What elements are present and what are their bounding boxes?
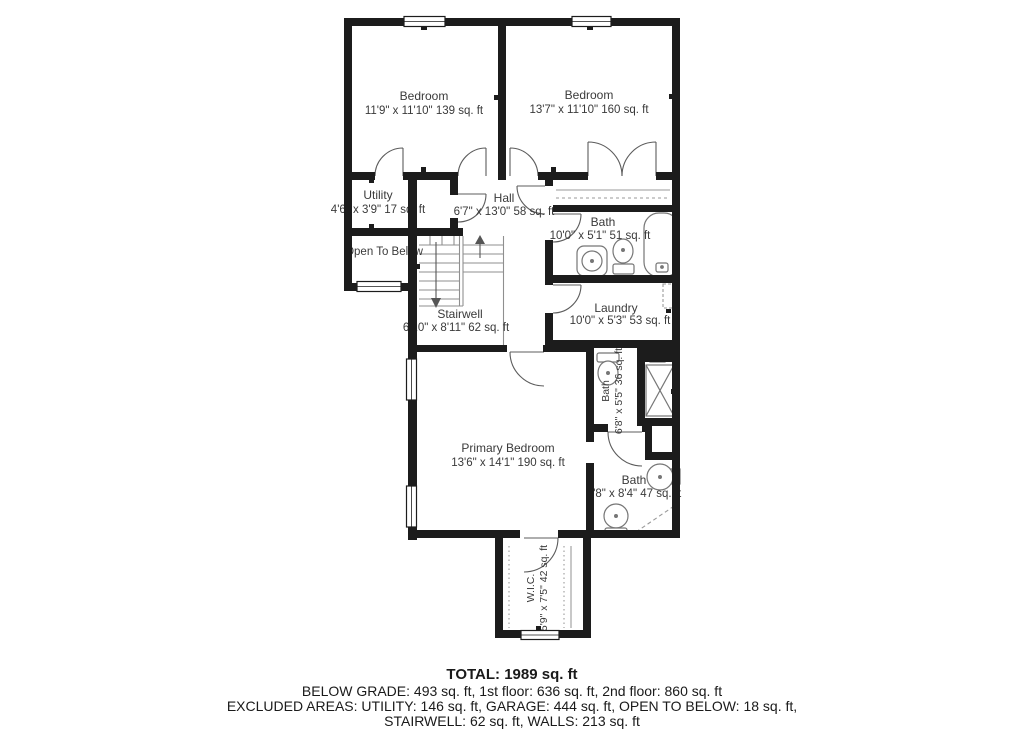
room-label-stairwell: Stairwell 6'10" x 8'11" 62 sq. ft — [403, 307, 510, 334]
door-arc — [608, 432, 642, 466]
window — [521, 631, 559, 640]
window — [404, 17, 445, 27]
room-label-wic: W.I.C. 5'9" x 7'5" 42 sq. ft — [525, 545, 550, 631]
room-label-primary-bedroom: Primary Bedroom 13'6" x 14'1" 190 sq. ft — [451, 441, 565, 469]
window — [407, 486, 417, 527]
room-name: Utility — [363, 188, 392, 202]
room-dims: 6'7" x 13'0" 58 sq. ft — [454, 206, 556, 218]
area-summary: TOTAL: 1989 sq. ft BELOW GRADE: 493 sq. … — [0, 666, 1024, 729]
door-arc — [510, 352, 544, 386]
room-label-bedroom-2: Bedroom 13'7" x 11'10" 160 sq. ft — [529, 88, 649, 116]
room-label-bath-upper: Bath 10'0" x 5'1" 51 sq. ft — [550, 215, 652, 242]
room-dims: 13'6" x 14'1" 190 sq. ft — [451, 457, 565, 469]
room-dims: 5'9" x 7'5" 42 sq. ft — [538, 545, 550, 631]
room-name: Bath — [591, 215, 616, 229]
room-name: W.I.C. — [525, 574, 537, 603]
room-name: Primary Bedroom — [461, 441, 554, 455]
room-name: Hall — [494, 191, 515, 205]
room-dims: 11'9" x 11'10" 139 sq. ft — [365, 105, 484, 117]
room-name: Bedroom — [565, 88, 614, 102]
floor-plan-page: Bedroom 11'9" x 11'10" 139 sq. ft Bedroo… — [0, 0, 1024, 738]
door-arc — [588, 142, 622, 176]
door-arc — [510, 148, 538, 176]
excluded-areas-text-2: STAIRWELL: 62 sq. ft, WALLS: 213 sq. ft — [0, 714, 1024, 729]
door-arc — [458, 148, 486, 176]
sink-icon — [577, 246, 607, 276]
room-dims: 10'0" x 5'3" 53 sq. ft — [570, 315, 672, 327]
room-name: Bedroom — [400, 89, 449, 103]
room-labels: Bedroom 11'9" x 11'10" 139 sq. ft Bedroo… — [331, 88, 682, 631]
window — [407, 359, 417, 400]
room-name: Laundry — [594, 301, 637, 315]
room-name: Stairwell — [437, 307, 482, 321]
room-name: Bath — [622, 473, 647, 487]
room-label-hall: Hall 6'7" x 13'0" 58 sq. ft — [454, 191, 556, 218]
floor-areas-text: BELOW GRADE: 493 sq. ft, 1st floor: 636 … — [0, 684, 1024, 699]
door-arc — [553, 285, 581, 313]
floor-plan: Bedroom 11'9" x 11'10" 139 sq. ft Bedroo… — [0, 0, 1024, 660]
room-dims: 13'7" x 11'10" 160 sq. ft — [529, 104, 649, 116]
room-label-bedroom-1: Bedroom 11'9" x 11'10" 139 sq. ft — [365, 89, 484, 117]
room-dims: 6'10" x 8'11" 62 sq. ft — [403, 322, 510, 334]
room-dims: 6'8" x 8'4" 47 sq. ft — [587, 488, 682, 500]
door-arc — [622, 142, 656, 176]
window — [572, 17, 611, 27]
room-dims: 6'8" x 5'5" 36 sq. ft — [613, 348, 625, 434]
toilet-icon — [613, 239, 634, 274]
window — [357, 282, 401, 292]
total-area-text: TOTAL: 1989 sq. ft — [0, 666, 1024, 684]
excluded-areas-text: EXCLUDED AREAS: UTILITY: 146 sq. ft, GAR… — [0, 699, 1024, 714]
room-name: Bath — [600, 380, 612, 402]
room-label-laundry: Laundry 10'0" x 5'3" 53 sq. ft — [570, 301, 672, 327]
door-arc — [375, 148, 403, 176]
room-dims: 10'0" x 5'1" 51 sq. ft — [550, 230, 652, 242]
